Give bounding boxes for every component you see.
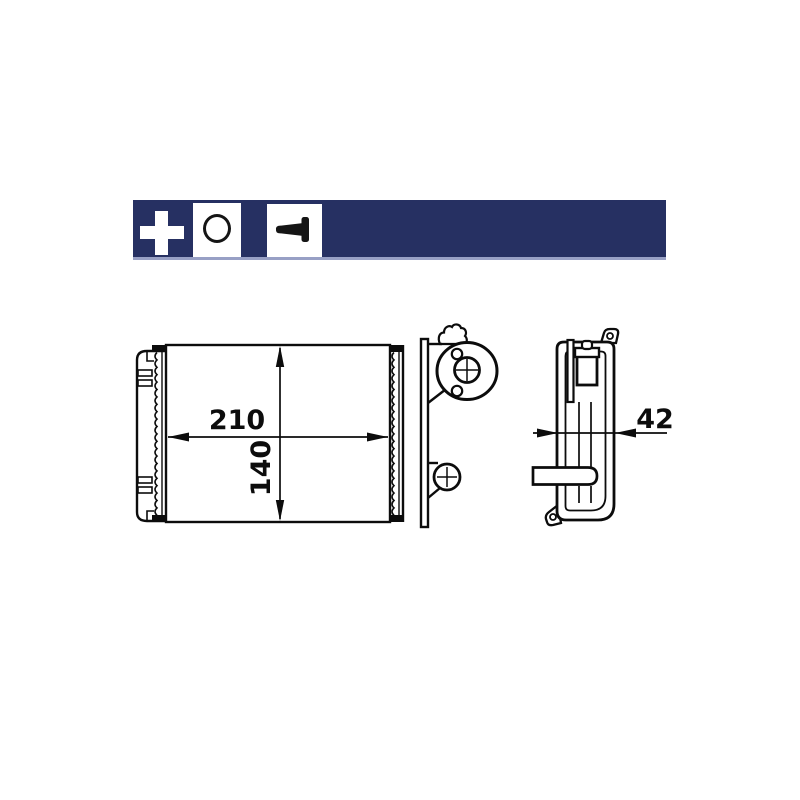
pipe-stub — [533, 468, 597, 485]
technical-drawing: 210 140 — [125, 318, 685, 543]
dimension-label-height: 140 — [246, 440, 277, 496]
side-plate — [421, 339, 428, 527]
core-body — [166, 345, 390, 522]
top-nipple — [575, 341, 599, 385]
ring-button[interactable] — [193, 203, 241, 257]
dimension-label-depth: 42 — [636, 404, 674, 435]
arrowhead-left — [615, 429, 636, 438]
pin-icon — [267, 204, 322, 257]
page: 210 140 — [0, 0, 800, 800]
edge-strip — [568, 340, 574, 402]
right-gasket-strip — [390, 345, 403, 522]
left-gasket-strip — [152, 345, 165, 522]
front-view: 210 140 — [137, 324, 497, 527]
side-view: 42 — [533, 329, 674, 525]
top-flange — [428, 324, 497, 403]
plus-icon — [155, 211, 168, 255]
pin-button[interactable] — [267, 204, 322, 257]
ring-icon — [203, 214, 231, 243]
add-button[interactable] — [139, 210, 185, 256]
dimension-label-width: 210 — [209, 405, 265, 436]
retaining-clip — [439, 324, 467, 344]
toolbar — [133, 200, 666, 260]
arrowhead-right — [537, 429, 558, 438]
lower-fitting — [428, 463, 460, 498]
